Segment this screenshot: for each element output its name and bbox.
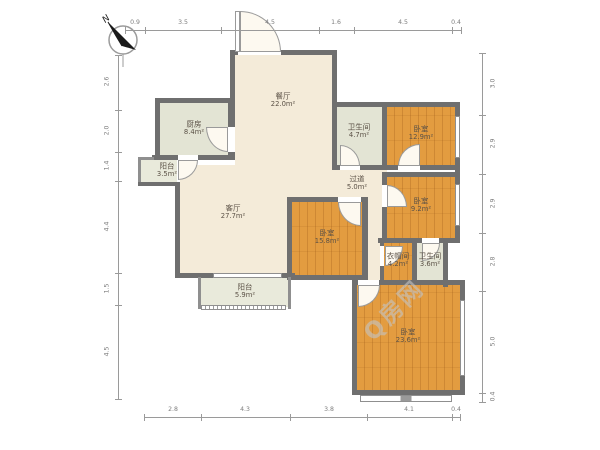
dimension-mark: [367, 414, 368, 421]
dimension-value: 3.5: [178, 19, 188, 26]
dimension-value: 2.9: [490, 198, 497, 208]
dimension-value: 3.8: [324, 406, 334, 413]
dimension-mark: [460, 414, 461, 421]
wall-balcony-small-left: [138, 157, 141, 185]
dimension-mark: [115, 110, 122, 111]
dimension-mark: [115, 55, 122, 56]
wall-bedroom-s-left: [352, 283, 357, 395]
closet-door-gap: [380, 246, 384, 266]
dimension-value: 4.5: [104, 347, 111, 357]
dimension-value: 0.9: [130, 19, 140, 26]
dimension-mark: [201, 414, 202, 421]
entrance-door-swing: [240, 11, 281, 52]
label-bedroom-s: 卧室23.6m²: [396, 328, 420, 344]
wall-north-top: [332, 102, 460, 107]
label-bath-small: 卫生间3.6m²: [419, 252, 441, 268]
dimension-value: 4.4: [104, 222, 111, 232]
window-living-south: [213, 273, 282, 278]
dimension-mark: [319, 27, 320, 34]
floor-plan: 餐厅22.0m² 厨房8.4m² 阳台3.5m² 客厅27.7m² 阳台5.9m…: [0, 0, 600, 450]
label-balcony-small: 阳台3.5m²: [157, 162, 177, 178]
label-bedroom-e: 卧室9.2m²: [411, 197, 431, 213]
label-dining: 餐厅22.0m²: [271, 92, 295, 108]
label-bath-main: 卫生间4.7m²: [348, 123, 370, 139]
label-kitchen: 厨房8.4m²: [184, 120, 204, 136]
dimension-value: 4.5: [398, 19, 408, 26]
dimension-value: 5.0: [490, 337, 497, 347]
dimension-mark: [145, 27, 146, 34]
dimension-mark: [144, 414, 145, 421]
label-living: 客厅27.7m²: [221, 204, 245, 220]
dimension-mark: [115, 181, 122, 182]
room-living: [180, 165, 287, 276]
window-bedroom-e-east: [455, 184, 460, 226]
window-bedroom-s-east: [460, 300, 465, 376]
dimension-mark: [479, 233, 486, 234]
dimension-value: 0.4: [451, 19, 461, 26]
label-closet: 衣帽间4.2m²: [387, 252, 409, 268]
dimension-mark: [479, 393, 486, 394]
wall-bedrooms-ne-e-div: [382, 172, 460, 177]
room-hallway: [287, 167, 387, 200]
dimension-mark: [482, 53, 483, 402]
dimension-value: 2.8: [490, 257, 497, 267]
dimension-value: 1.6: [331, 19, 341, 26]
dimension-value: 4.1: [405, 406, 415, 413]
dimension-mark: [144, 417, 460, 418]
dimension-value: 4.5: [265, 19, 275, 26]
wall-living-left: [175, 182, 180, 278]
dimension-mark: [452, 27, 453, 34]
label-balcony: 阳台5.9m²: [235, 283, 255, 299]
dimension-mark: [125, 30, 461, 31]
dimension-mark: [479, 53, 486, 54]
dimension-mark: [115, 305, 122, 306]
wall-bedroom-c-left: [287, 197, 292, 278]
wall-bath-bedroom-div: [382, 102, 387, 170]
dimension-mark: [221, 27, 222, 34]
wall-dining-left: [230, 50, 235, 105]
window-balcony-rail: [201, 305, 286, 310]
wall-bedroom-e-left: [382, 172, 387, 243]
wall-kitchen-left: [155, 98, 160, 160]
dimension-mark: [115, 152, 122, 153]
dimension-value: 1.5: [104, 284, 111, 294]
label-hallway: 过道5.0m²: [347, 175, 367, 191]
dimension-mark: [452, 414, 453, 421]
wall-dining-right: [332, 50, 337, 170]
dimension-value: 0.4: [490, 392, 497, 402]
dimension-value: 2.8: [168, 406, 178, 413]
compass-north-label: N: [101, 13, 113, 25]
dimension-value: 1.4: [104, 161, 111, 171]
dimension-mark: [479, 115, 486, 116]
dimension-mark: [479, 291, 486, 292]
wall-balcony-small-bottom: [138, 182, 180, 186]
dimension-value: 2.0: [104, 125, 111, 135]
wall-bedroom-c-right: [362, 197, 368, 278]
dimension-mark: [125, 27, 126, 34]
dimension-mark: [290, 414, 291, 421]
dimension-mark: [479, 402, 486, 403]
room-dining: [235, 55, 332, 170]
window-bedroom-s-south: [360, 395, 452, 402]
wall-balcony-right: [288, 277, 291, 309]
dimension-mark: [115, 273, 122, 274]
dimension-mark: [461, 27, 462, 34]
dimension-value: 4.3: [241, 406, 251, 413]
wall-kitchen-top: [155, 98, 235, 103]
label-bedroom-c: 卧室15.8m²: [315, 229, 339, 245]
dimension-mark: [354, 27, 355, 34]
dimension-value: 0.4: [451, 406, 461, 413]
window-bedroom-ne-east: [455, 116, 460, 158]
wall-dining-top-right: [281, 50, 337, 55]
dimension-mark: [479, 174, 486, 175]
wall-bedroom-ne-bottom: [382, 165, 460, 170]
dimension-mark: [118, 55, 119, 399]
kitchen-door-gap: [228, 127, 235, 152]
north-compass-icon: N: [98, 10, 148, 68]
label-bedroom-ne: 卧室12.9m²: [409, 125, 433, 141]
dimension-value: 3.0: [490, 78, 497, 88]
dimension-mark: [115, 399, 122, 400]
dimension-value: 2.9: [490, 139, 497, 149]
dimension-value: 2.6: [104, 77, 111, 87]
